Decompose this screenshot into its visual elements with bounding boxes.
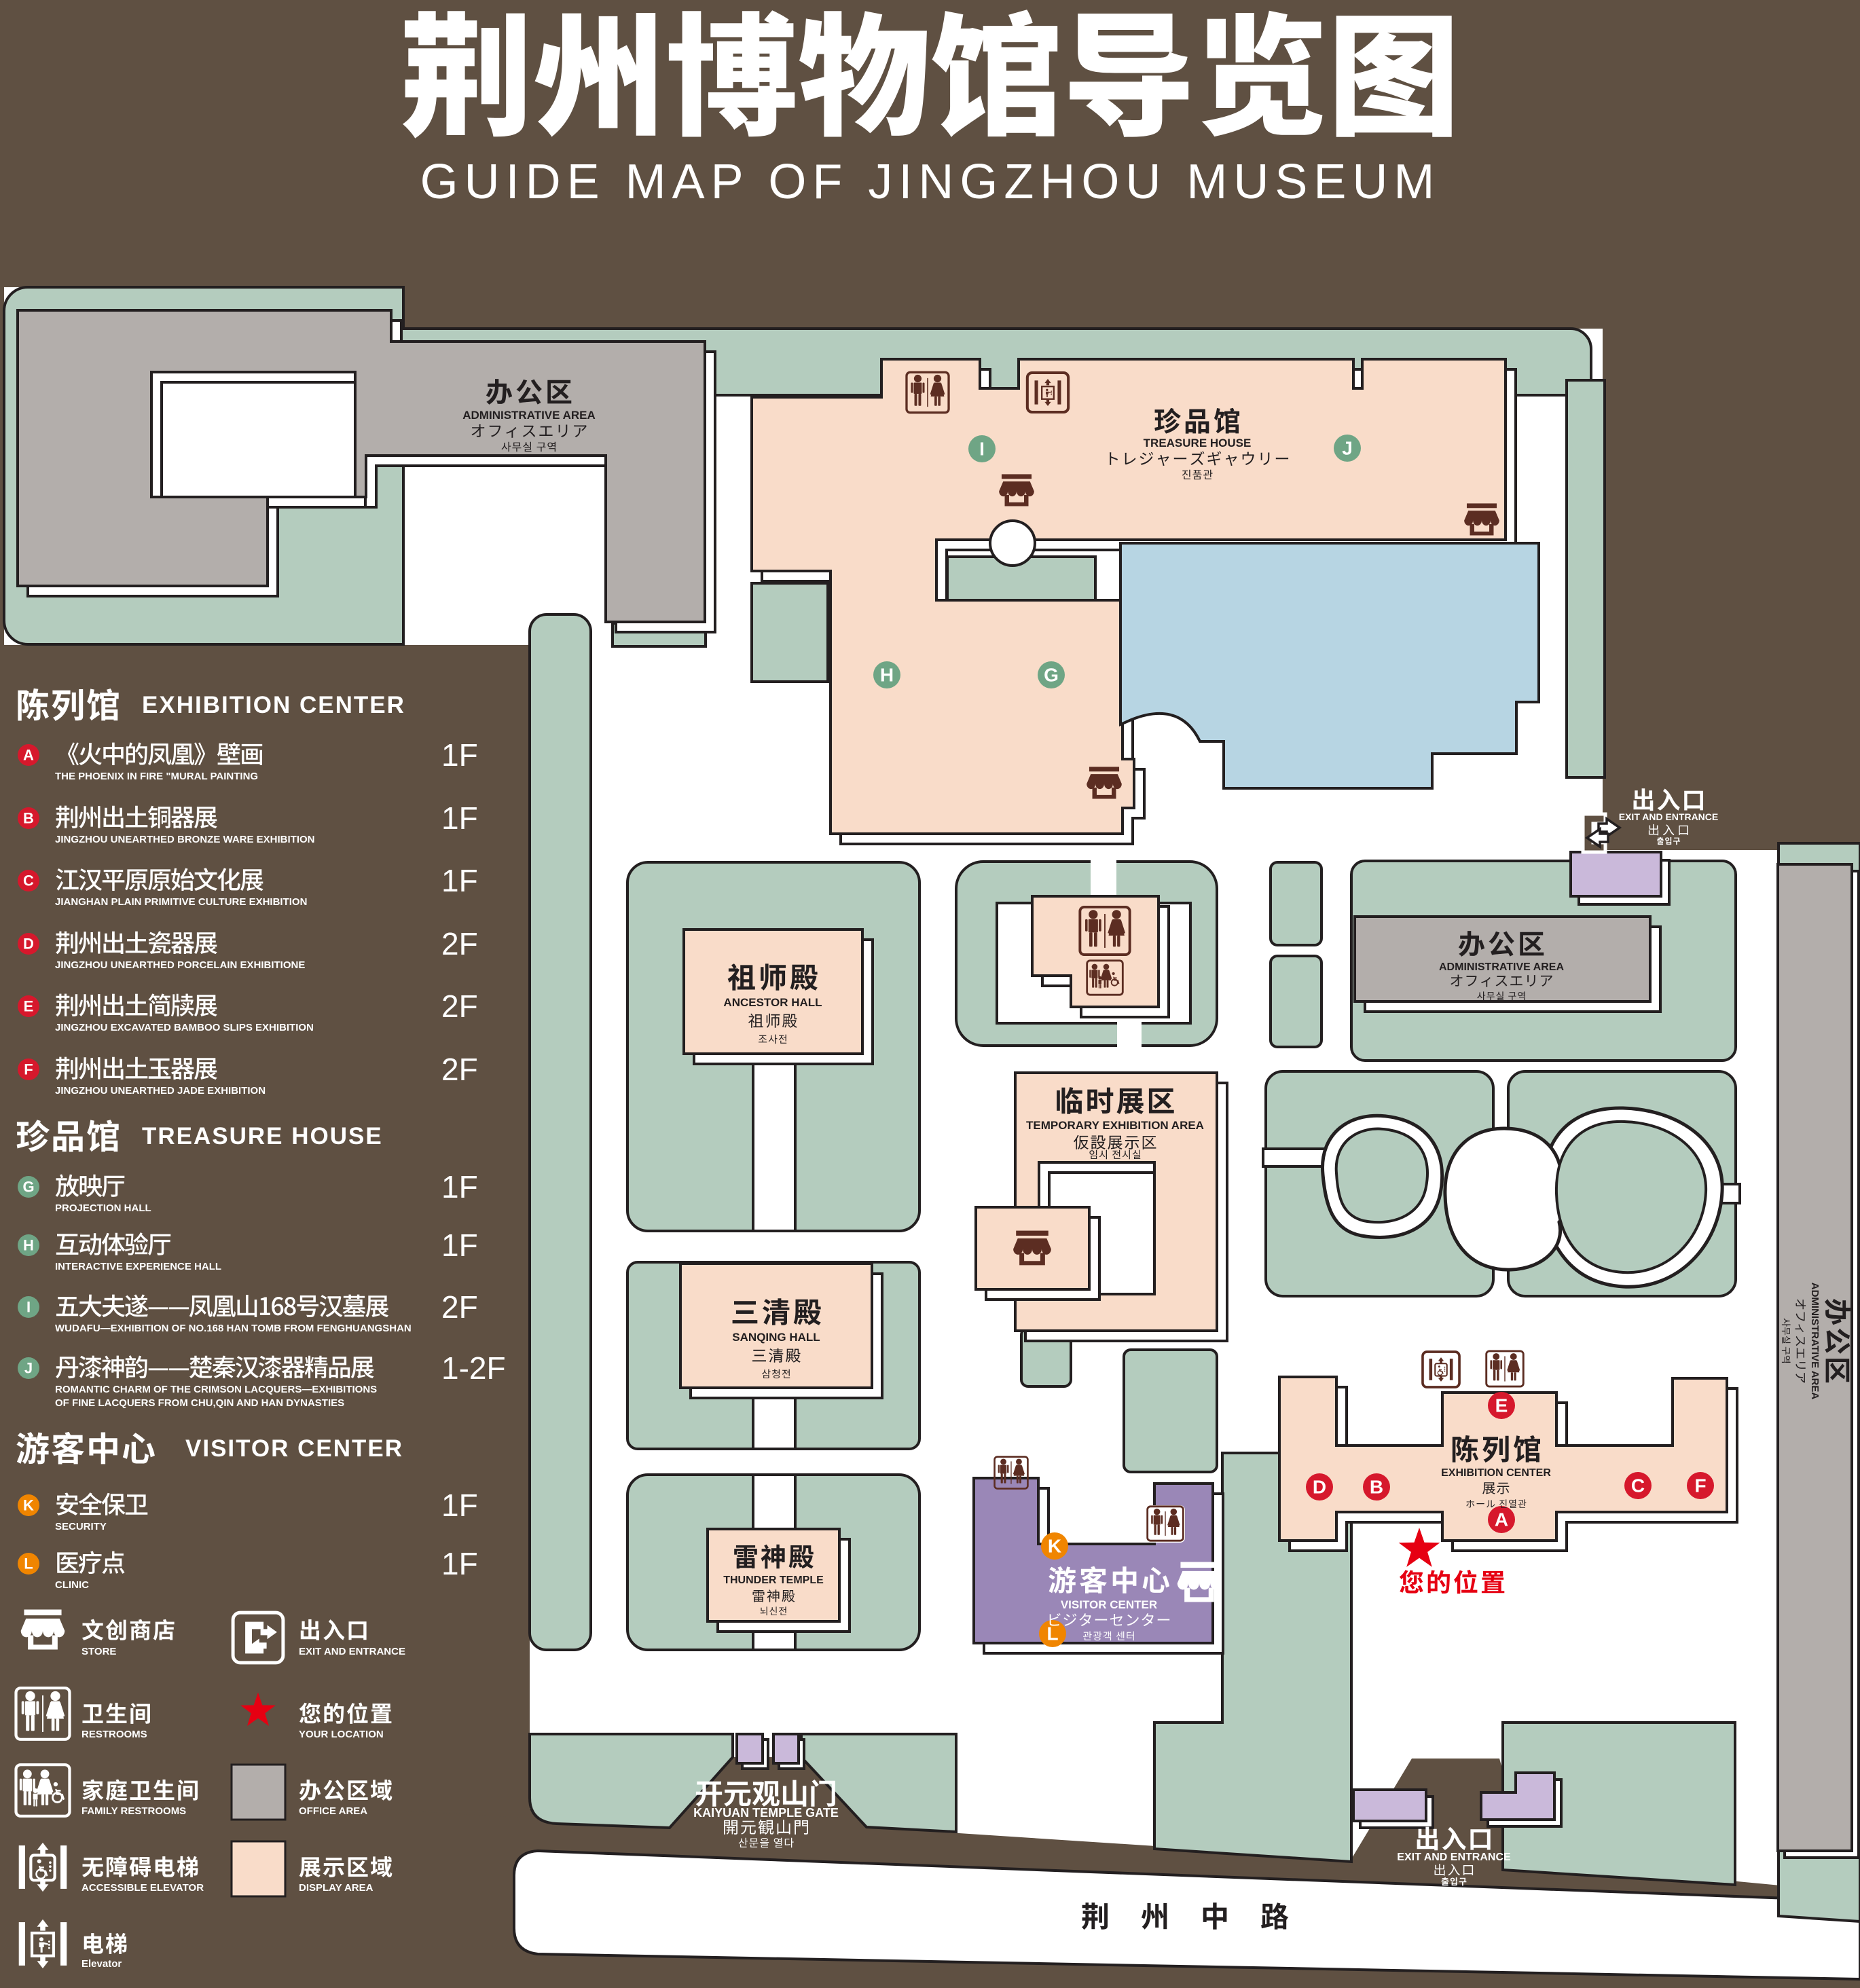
svg-text:1F: 1F: [441, 1228, 478, 1263]
svg-text:Elevator: Elevator: [81, 1958, 122, 1970]
svg-text:F: F: [1694, 1475, 1706, 1496]
svg-text:VISITOR CENTER: VISITOR CENTER: [185, 1435, 403, 1462]
svg-text:D: D: [1313, 1477, 1326, 1498]
svg-text:OFFICE AREA: OFFICE AREA: [299, 1805, 367, 1817]
svg-text:JINGZHOU EXCAVATED BAMBOO SLIP: JINGZHOU EXCAVATED BAMBOO SLIPS EXHIBITI…: [55, 1022, 314, 1033]
svg-text:I: I: [26, 1299, 31, 1316]
svg-text:ANCESTOR HALL: ANCESTOR HALL: [723, 996, 822, 1009]
svg-text:TREASURE HOUSE: TREASURE HOUSE: [142, 1123, 383, 1149]
svg-text:VISITOR CENTER: VISITOR CENTER: [1061, 1598, 1157, 1611]
svg-text:RESTROOMS: RESTROOMS: [81, 1729, 147, 1740]
svg-text:ADMINISTRATIVE AREA: ADMINISTRATIVE AREA: [1439, 961, 1564, 973]
svg-text:THUNDER TEMPLE: THUNDER TEMPLE: [723, 1575, 824, 1586]
svg-text:ADMINISTRATIVE AREA: ADMINISTRATIVE AREA: [462, 409, 596, 422]
svg-text:OF FINE LACQUERS FROM CHU,QIN: OF FINE LACQUERS FROM CHU,QIN AND HAN DY…: [55, 1397, 344, 1409]
svg-text:THE PHOENIX IN FIRE "MURAL PAI: THE PHOENIX IN FIRE "MURAL PAINTING: [55, 771, 258, 782]
svg-text:TREASURE HOUSE: TREASURE HOUSE: [1144, 437, 1252, 449]
svg-text:2F: 2F: [441, 989, 478, 1024]
svg-text:G: G: [1044, 665, 1059, 686]
svg-text:ACCESSIBLE ELEVATOR: ACCESSIBLE ELEVATOR: [81, 1882, 204, 1894]
svg-text:EXHIBITION CENTER: EXHIBITION CENTER: [142, 692, 405, 718]
svg-text:J: J: [1342, 438, 1353, 459]
svg-text:H: H: [880, 665, 894, 686]
svg-text:EXHIBITION CENTER: EXHIBITION CENTER: [1441, 1467, 1551, 1479]
svg-text:JINGZHOU UNEARTHED PORCELAIN E: JINGZHOU UNEARTHED PORCELAIN EXHIBITIONE: [55, 959, 305, 971]
svg-text:EXIT AND ENTRANCE: EXIT AND ENTRANCE: [1619, 811, 1719, 822]
svg-text:D: D: [23, 936, 34, 953]
svg-text:PROJECTION HALL: PROJECTION HALL: [55, 1202, 151, 1214]
svg-text:1F: 1F: [441, 800, 478, 836]
svg-text:C: C: [1631, 1475, 1645, 1496]
svg-text:JIANGHAN PLAIN PRIMITIVE CULTU: JIANGHAN PLAIN PRIMITIVE CULTURE EXHIBIT…: [55, 896, 307, 908]
svg-text:H: H: [23, 1237, 34, 1254]
svg-text:B: B: [1370, 1477, 1383, 1498]
svg-text:GUIDE MAP OF JINGZHOU MUSEUM: GUIDE MAP OF JINGZHOU MUSEUM: [420, 155, 1441, 209]
svg-text:2F: 2F: [441, 926, 478, 961]
svg-text:ADMINISTRATIVE AREA: ADMINISTRATIVE AREA: [1809, 1283, 1821, 1400]
svg-text:DISPLAY AREA: DISPLAY AREA: [299, 1882, 373, 1894]
svg-text:WUDAFU—EXHIBITION OF NO.168 HA: WUDAFU—EXHIBITION OF NO.168 HAN TOMB FRO…: [55, 1323, 412, 1334]
svg-text:2F: 2F: [441, 1052, 478, 1087]
svg-text:SANQING HALL: SANQING HALL: [732, 1331, 820, 1344]
svg-text:1F: 1F: [441, 863, 478, 898]
svg-text:FAMILY RESTROOMS: FAMILY RESTROOMS: [81, 1805, 186, 1817]
svg-text:A: A: [23, 747, 34, 764]
svg-text:JINGZHOU UNEARTHED JADE EXHIBI: JINGZHOU UNEARTHED JADE EXHIBITION: [55, 1085, 266, 1097]
svg-text:ROMANTIC CHARM OF THE CRIMSON: ROMANTIC CHARM OF THE CRIMSON LACQUERS—E…: [55, 1384, 377, 1395]
svg-text:YOUR LOCATION: YOUR LOCATION: [299, 1729, 384, 1740]
svg-text:L: L: [1046, 1623, 1058, 1644]
svg-text:C: C: [23, 872, 34, 889]
svg-text:EXIT AND ENTRANCE: EXIT AND ENTRANCE: [299, 1646, 405, 1657]
svg-text:2F: 2F: [441, 1289, 478, 1325]
svg-text:E: E: [1495, 1395, 1508, 1416]
svg-text:J: J: [24, 1360, 33, 1377]
svg-text:STORE: STORE: [81, 1646, 116, 1657]
svg-text:SECURITY: SECURITY: [55, 1521, 107, 1532]
svg-text:1F: 1F: [441, 1488, 478, 1523]
svg-text:1-2F: 1-2F: [441, 1350, 506, 1386]
svg-text:1F: 1F: [441, 737, 478, 773]
svg-text:INTERACTIVE EXPERIENCE HALL: INTERACTIVE EXPERIENCE HALL: [55, 1261, 221, 1272]
svg-text:F: F: [24, 1061, 33, 1078]
svg-text:I: I: [979, 439, 985, 460]
svg-text:JINGZHOU UNEARTHED BRONZE WARE: JINGZHOU UNEARTHED BRONZE WARE EXHIBITIO…: [55, 834, 315, 845]
svg-text:1F: 1F: [441, 1546, 478, 1581]
svg-text:EXIT AND ENTRANCE: EXIT AND ENTRANCE: [1397, 1852, 1511, 1863]
svg-text:K: K: [23, 1497, 34, 1514]
svg-text:G: G: [22, 1179, 34, 1196]
svg-text:K: K: [1048, 1536, 1061, 1557]
svg-text:KAIYUAN TEMPLE GATE: KAIYUAN TEMPLE GATE: [693, 1806, 839, 1820]
svg-text:A: A: [1495, 1509, 1508, 1530]
svg-text:L: L: [24, 1556, 33, 1572]
svg-text:TEMPORARY EXHIBITION AREA: TEMPORARY EXHIBITION AREA: [1026, 1119, 1204, 1132]
svg-text:B: B: [23, 810, 34, 827]
svg-text:E: E: [24, 998, 34, 1015]
svg-text:1F: 1F: [441, 1169, 478, 1204]
svg-text:CLINIC: CLINIC: [55, 1579, 89, 1591]
